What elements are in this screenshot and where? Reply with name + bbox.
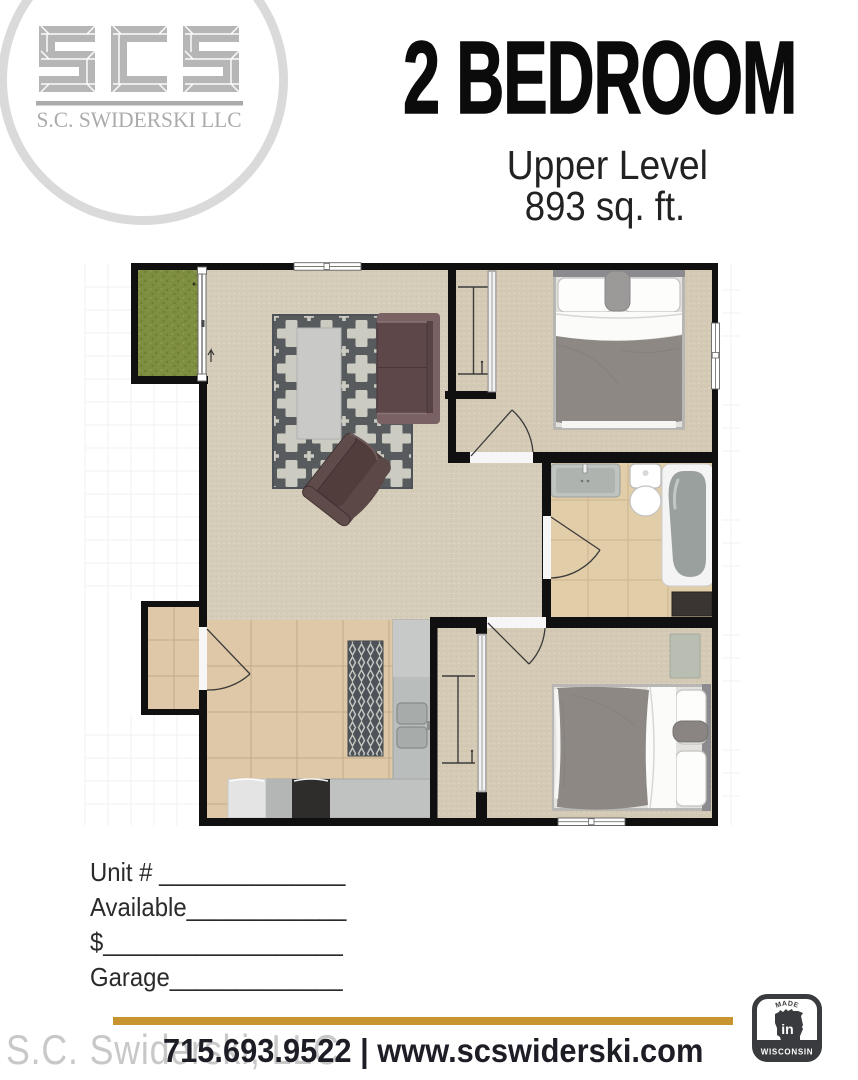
svg-text:in: in: [781, 1021, 793, 1037]
svg-text:WISCONSIN: WISCONSIN: [761, 1048, 814, 1057]
